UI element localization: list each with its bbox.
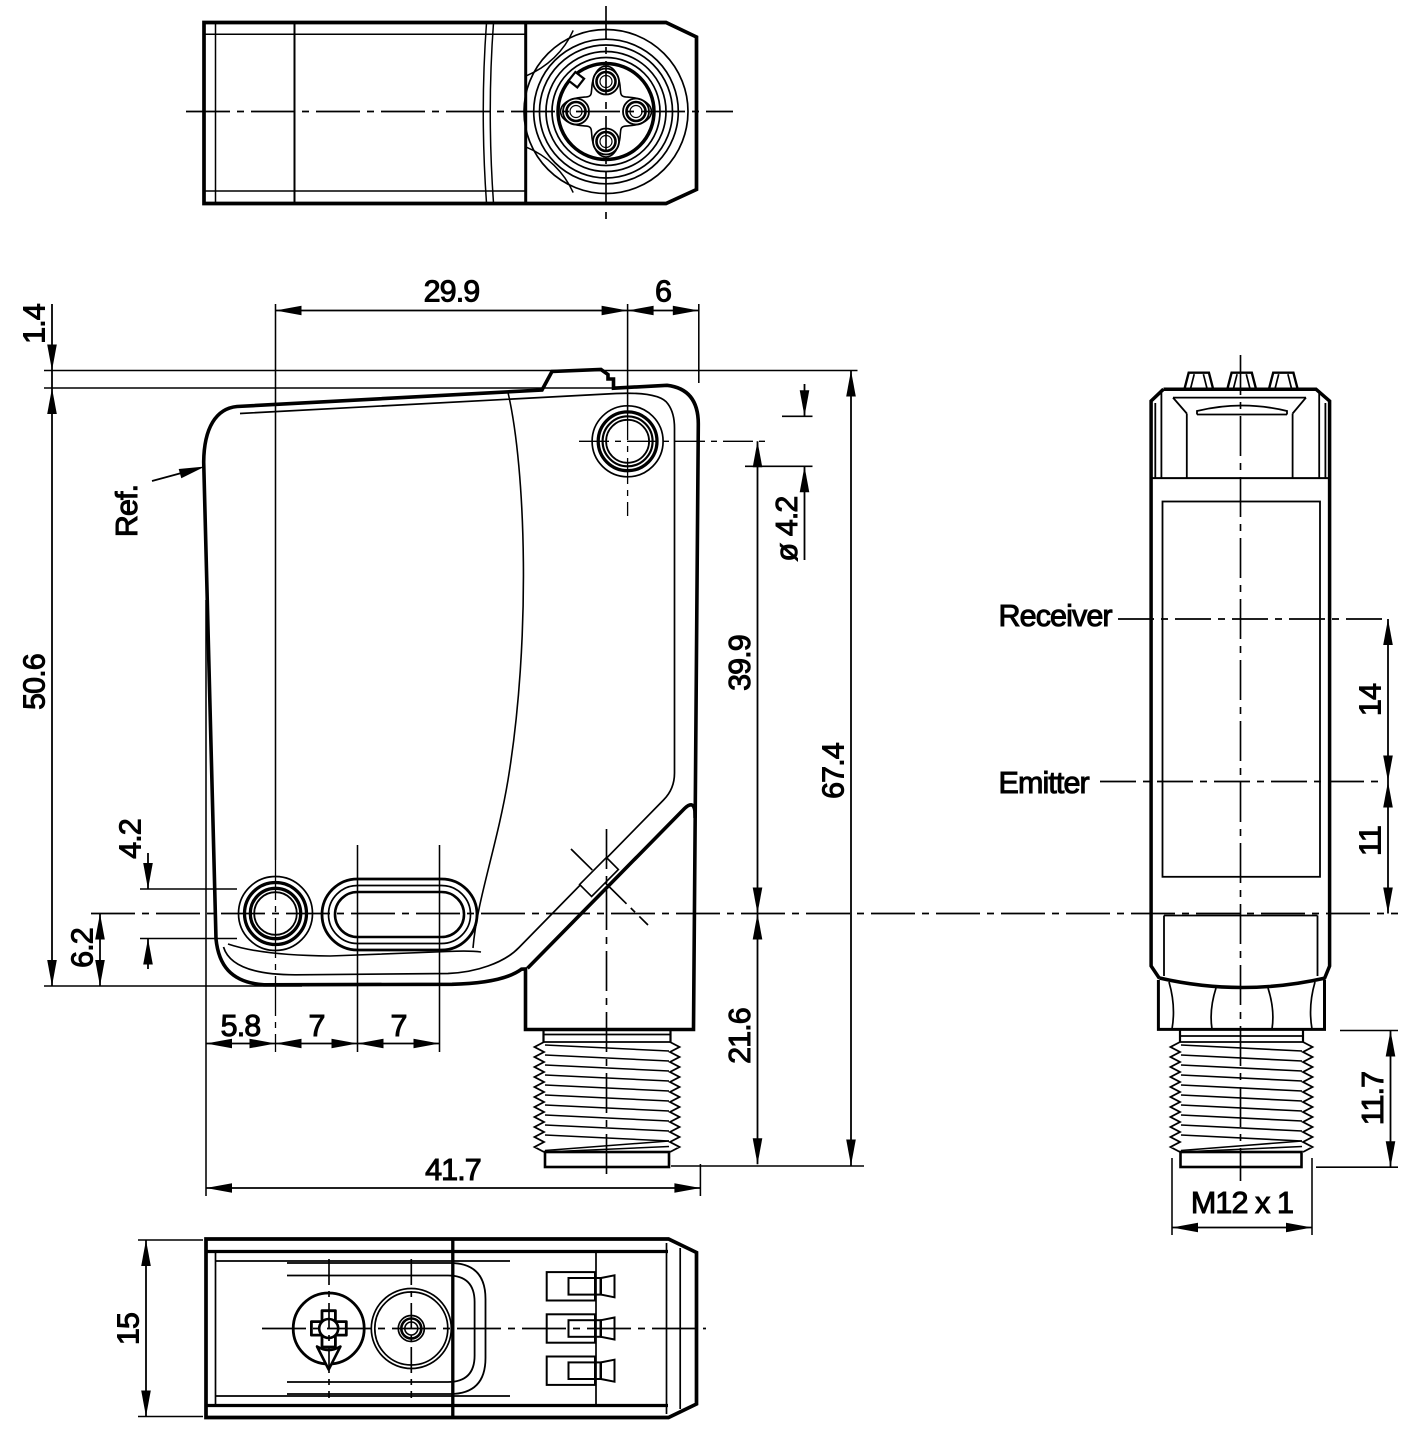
- svg-text:Receiver: Receiver: [999, 599, 1113, 633]
- svg-text:1.4: 1.4: [18, 303, 52, 344]
- svg-text:Emitter: Emitter: [999, 766, 1090, 800]
- svg-text:11.7: 11.7: [1356, 1072, 1390, 1126]
- svg-text:21.6: 21.6: [723, 1008, 757, 1064]
- svg-text:15: 15: [112, 1313, 146, 1345]
- svg-text:29.9: 29.9: [424, 275, 480, 309]
- svg-text:6.2: 6.2: [66, 928, 100, 968]
- svg-text:4.2: 4.2: [114, 819, 148, 859]
- svg-text:11: 11: [1354, 826, 1388, 856]
- svg-text:7: 7: [390, 1009, 406, 1043]
- svg-text:Ref.: Ref.: [110, 485, 144, 537]
- svg-text:6: 6: [655, 275, 671, 309]
- svg-text:39.9: 39.9: [723, 635, 757, 691]
- svg-text:ø 4.2: ø 4.2: [770, 496, 804, 561]
- svg-text:7: 7: [308, 1009, 324, 1043]
- svg-text:14: 14: [1354, 683, 1388, 716]
- svg-text:50.6: 50.6: [18, 654, 52, 710]
- svg-text:5.8: 5.8: [221, 1009, 261, 1043]
- svg-text:41.7: 41.7: [425, 1153, 481, 1187]
- svg-text:67.4: 67.4: [817, 742, 851, 799]
- svg-text:M12 x 1: M12 x 1: [1191, 1186, 1293, 1220]
